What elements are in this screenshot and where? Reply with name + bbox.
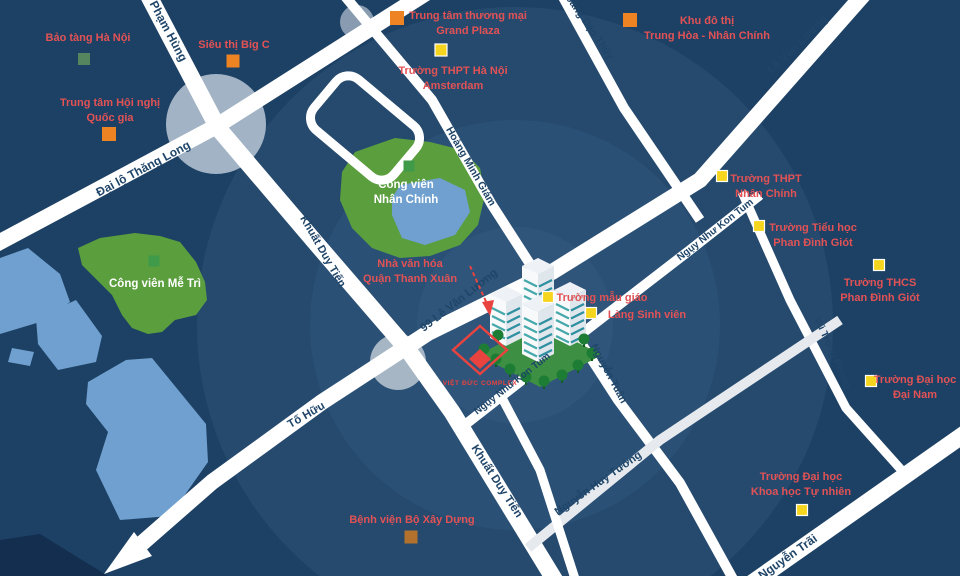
trung-tam-hoi-nghi-quoc-gia-label: Trung tâm Hội nghị [60,97,160,109]
dai-hoc-dai-nam-label: Đại Nam [893,389,937,401]
trung-tam-hoi-nghi-quoc-gia-marker [102,127,116,141]
sieu-thi-big-c-marker [227,55,240,68]
khu-do-thi-trung-hoa-nhan-chinh-marker [623,13,637,27]
dai-hoc-khoa-hoc-tu-nhien-label: Khoa học Tự nhiên [751,486,852,498]
grand-plaza-label: Trung tâm thương mại [409,10,527,22]
grand-plaza-marker [390,11,404,25]
grand-plaza-label: Grand Plaza [436,25,500,37]
truong-mau-giao-label: Trường mẫu giáo [557,291,648,304]
thcs-phan-dinh-giot-label: Trường THCS [844,277,917,289]
tree-icon [505,364,516,375]
map-svg: VIỆT ĐỨC COMPLEXPhạm HùngĐại lộ Thăng Lo… [0,0,960,576]
sieu-thi-big-c-label: Siêu thị Big C [198,39,270,51]
tieu-hoc-phan-dinh-giot-marker [754,221,765,232]
bao-tang-ha-noi-label: Bảo tàng Hà Nội [46,32,131,44]
map-canvas: VIỆT ĐỨC COMPLEXPhạm HùngĐại lộ Thăng Lo… [0,0,960,576]
cong-vien-nhan-chinh-label: Công viên [378,179,434,191]
thpt-nhan-chinh-label: Nhân Chính [735,188,797,200]
tree-icon [557,370,568,381]
cong-vien-me-tri-label: Công viên Mễ Trì [109,277,201,290]
cong-vien-me-tri-marker [149,256,160,267]
tieu-hoc-phan-dinh-giot-label: Trường Tiểu học [769,222,857,234]
tree-icon [539,376,550,387]
nha-van-hoa-quan-thanh-xuan-label: Quận Thanh Xuân [363,273,457,285]
dai-hoc-khoa-hoc-tu-nhien-marker [797,505,808,516]
thcs-phan-dinh-giot-label: Phan Đình Giót [840,292,920,304]
benh-vien-bo-xay-dung-marker [405,531,418,544]
khu-do-thi-trung-hoa-nhan-chinh-label: Khu đô thị [680,15,734,27]
thpt-nhan-chinh-label: Trường THPT [730,173,802,185]
lang-sinh-vien-label: Làng Sinh viên [608,309,687,321]
thcs-phan-dinh-giot-marker [874,260,885,271]
tree-icon [579,334,590,345]
trung-tam-hoi-nghi-quoc-gia-label: Quốc gia [86,112,134,124]
dai-hoc-dai-nam-label: Trường Đại học [874,374,956,386]
thpt-ha-noi-amsterdam-label: Trường THPT Hà Nội [398,65,507,77]
bao-tang-ha-noi-marker [78,53,90,65]
tree-icon [573,360,584,371]
benh-vien-bo-xay-dung-label: Bệnh viện Bộ Xây Dựng [349,514,474,526]
dai-hoc-khoa-hoc-tu-nhien-label: Trường Đại học [760,471,842,483]
cong-vien-nhan-chinh-marker [404,161,415,172]
tower-4 [522,296,554,362]
tieu-hoc-phan-dinh-giot-label: Phan Đình Giót [773,237,853,249]
thpt-nhan-chinh-marker [717,171,728,182]
nha-van-hoa-quan-thanh-xuan-label: Nhà văn hóa [377,258,443,270]
lang-sinh-vien-marker [586,308,597,319]
cong-vien-nhan-chinh-label: Nhân Chính [374,194,439,206]
khu-do-thi-trung-hoa-nhan-chinh-label: Trung Hòa - Nhân Chính [644,30,770,42]
thpt-ha-noi-amsterdam-label: Amsterdam [423,80,484,92]
thpt-ha-noi-amsterdam-marker [435,44,447,56]
truong-mau-giao-marker [543,292,554,303]
